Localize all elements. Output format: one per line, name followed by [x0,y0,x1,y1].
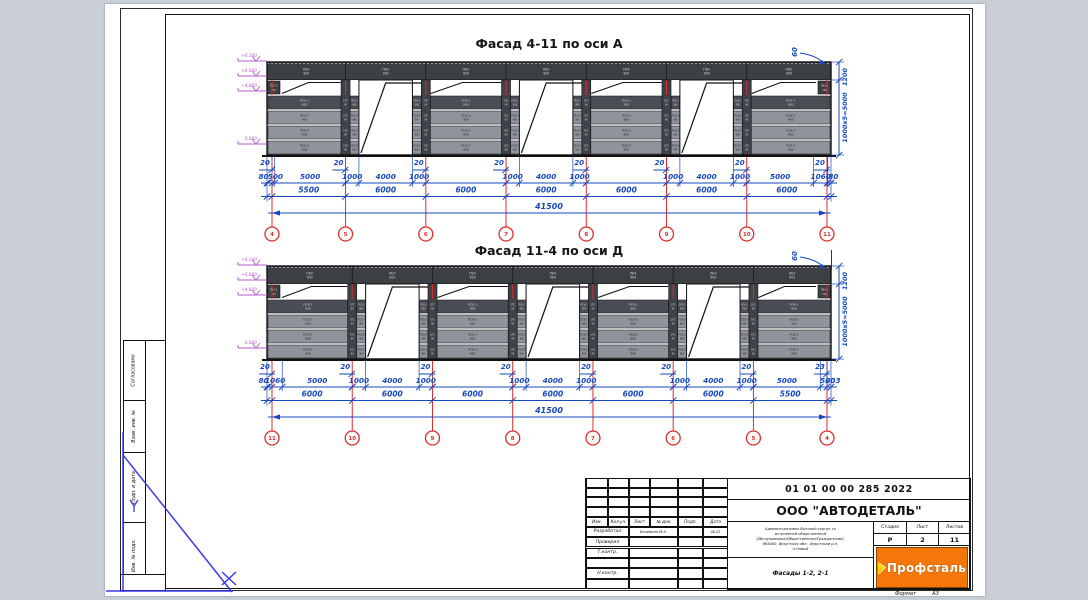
grid-row [586,507,728,517]
grid-cell [703,507,728,517]
side-stamp: СогласованоВзам. инв. №Подп. и датаИнв. … [123,340,166,590]
grid-row: Проверил [586,537,728,547]
stamp-label: Инв. № подл. [132,539,137,572]
title-block: 01 01 00 00 285 2022 ООО "АВТОДЕТАЛЬ" Ад… [585,478,970,589]
description-line: п.Новый [793,547,809,552]
signature-date [703,579,728,589]
column-header: Кол.уч. [608,517,629,527]
grid-cell [650,478,678,488]
doc-number: 01 01 00 00 285 2022 [727,478,971,500]
grid-cell [650,488,678,498]
signature-date [703,558,728,568]
signature-sign [678,527,703,537]
grid-cell [629,507,650,517]
grid-cell [586,478,608,488]
grid-row [586,558,728,568]
column-header: Изм. [586,517,608,527]
format-label: Формат [895,591,916,597]
logo-cell: Профсталь [873,545,971,590]
stamp-label: Подп. и дата [132,471,137,504]
signature-sign [678,548,703,558]
grid-cell [586,497,608,507]
grid-cell [608,507,629,517]
column-header: Дата [703,517,728,527]
grid-cell [650,497,678,507]
signature-sign [678,568,703,578]
stamp-label: Взам. инв. № [132,410,137,443]
signature-name [629,568,678,578]
stamp-cell-1: Взам. инв. № [124,401,145,453]
stamp-label: Согласовано [132,354,137,386]
signature-date [703,537,728,547]
signature-role: Проверил [586,537,629,547]
grid-cell [629,478,650,488]
format-note: Формат А3 [862,591,972,597]
signature-name [629,537,678,547]
format-value: А3 [932,591,939,597]
signature-role: Н.контр. [586,568,629,578]
grid-row [586,497,728,507]
signature-name [629,579,678,589]
grid-cell [586,488,608,498]
signature-role: Разработал [586,527,629,537]
grid-cell [608,497,629,507]
grid-cell [629,497,650,507]
grid-cell [629,488,650,498]
drawing-viewport: СогласованоВзам. инв. №Подп. и датаИнв. … [0,0,1088,600]
column-header: № док. [650,517,678,527]
stamp-cell-0: Согласовано [124,341,145,401]
signature-name [629,548,678,558]
side-stamp-divider [145,341,146,589]
grid-row: Изм.Кол.уч.Лист№ док.Подп.Дата [586,517,728,527]
signature-sign [678,558,703,568]
signature-date [703,548,728,558]
signature-role [586,558,629,568]
column-header: Подп. [678,517,703,527]
signature-role: Т.контр. [586,548,629,558]
stamp-cell-2: Подп. и дата [124,453,145,523]
column-header: Лист [629,517,650,527]
company-name: ООО "АВТОДЕТАЛЬ" [727,499,971,522]
signature-date: 08.22 [703,527,728,537]
signature-date [703,568,728,578]
grid-row: Т.контр. [586,548,728,558]
project-description: Административно-бытовой корпус совстроен… [727,521,874,558]
grid-cell [586,507,608,517]
grid-cell [650,507,678,517]
grid-row: РазработалБечевина М.А.08.22 [586,527,728,537]
grid-cell [678,488,703,498]
signature-role [586,579,629,589]
signature-name: Бечевина М.А. [629,527,678,537]
signature-name [629,558,678,568]
signature-sign [678,537,703,547]
drawing-name: Фасады 1-2, 2-1 [727,557,874,590]
grid-row: Н.контр. [586,568,728,578]
grid-cell [678,478,703,488]
grid-row [586,478,728,488]
grid-row [586,579,728,589]
profstal-logo: Профсталь [876,547,968,588]
grid-cell [703,488,728,498]
logo-wordmark: Профсталь [887,561,966,575]
logo-triangle-icon [878,561,885,574]
grid-cell [608,488,629,498]
grid-row [586,488,728,498]
grid-cell [703,497,728,507]
grid-cell [678,497,703,507]
grid-cell [608,478,629,488]
signature-sign [678,579,703,589]
grid-cell [678,507,703,517]
grid-cell [703,478,728,488]
corner-box [120,574,166,591]
